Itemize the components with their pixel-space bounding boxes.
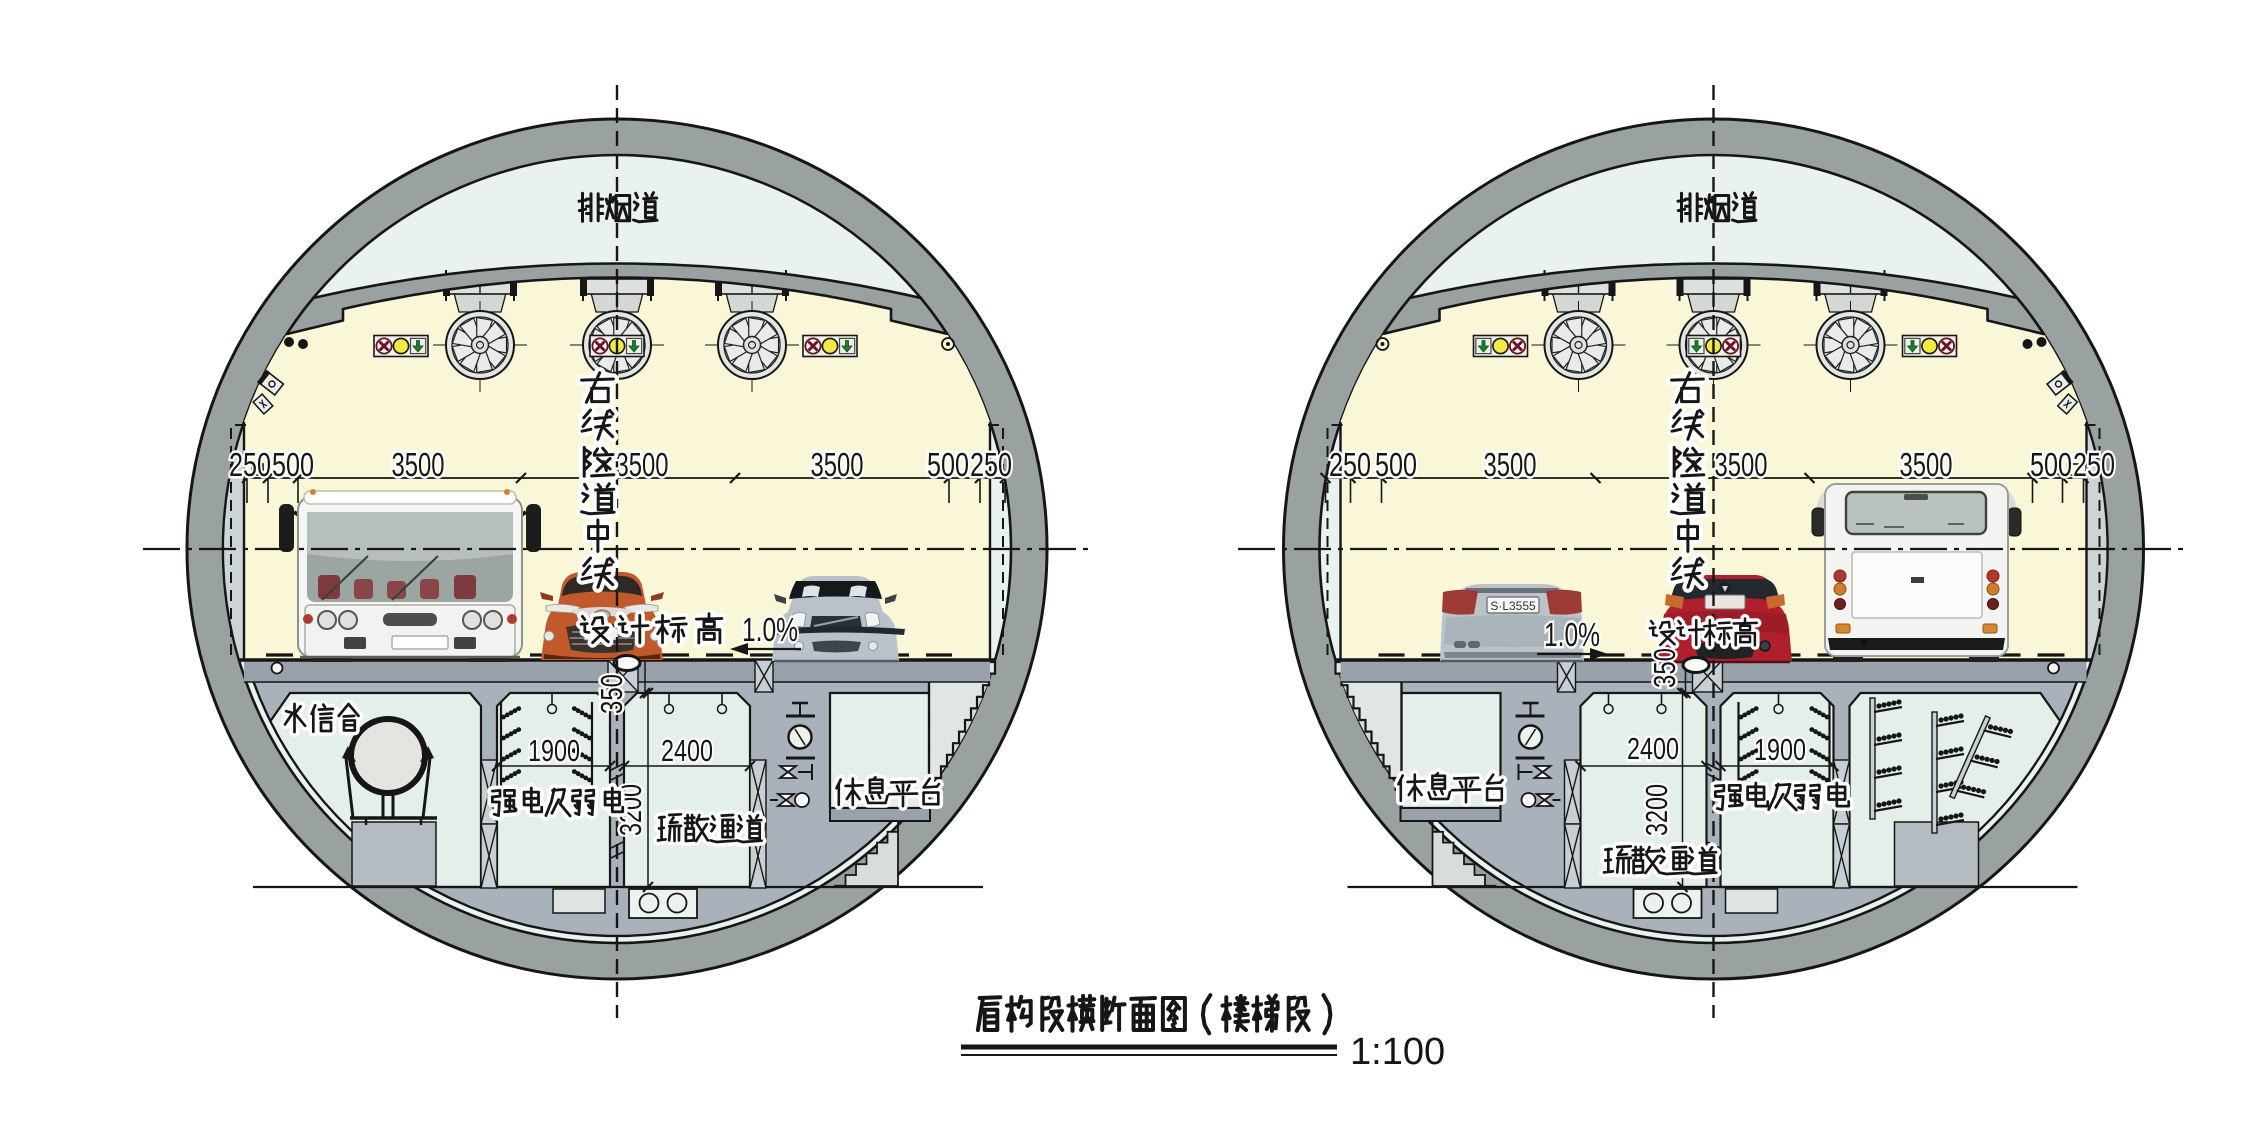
svg-text:3500: 3500 <box>811 446 864 483</box>
svg-text:3500: 3500 <box>1715 446 1768 483</box>
svg-text:2400: 2400 <box>661 733 713 768</box>
svg-text:500: 500 <box>2030 446 2072 483</box>
svg-text:500: 500 <box>272 446 314 483</box>
svg-text:3500: 3500 <box>1484 446 1537 483</box>
svg-text:250: 250 <box>2073 446 2115 483</box>
svg-text:500: 500 <box>927 446 969 483</box>
svg-text:1900: 1900 <box>1754 732 1806 767</box>
svg-text:1900: 1900 <box>528 733 580 768</box>
svg-text:1.0%: 1.0% <box>742 611 798 648</box>
svg-text:350: 350 <box>1647 648 1682 688</box>
svg-text:250: 250 <box>229 446 271 483</box>
svg-text:1:100: 1:100 <box>1350 1031 1445 1073</box>
svg-text:S·L3555: S·L3555 <box>1490 599 1536 613</box>
svg-text:3500: 3500 <box>392 446 445 483</box>
svg-text:500: 500 <box>1375 446 1417 483</box>
svg-text:250: 250 <box>970 446 1012 483</box>
svg-text:1.0%: 1.0% <box>1544 616 1600 653</box>
svg-text:350: 350 <box>594 674 629 714</box>
svg-text:2400: 2400 <box>1627 731 1679 766</box>
svg-text:3500: 3500 <box>616 446 669 483</box>
svg-text:250: 250 <box>1329 446 1371 483</box>
svg-text:3200: 3200 <box>1639 784 1674 836</box>
svg-text:3500: 3500 <box>1900 446 1953 483</box>
